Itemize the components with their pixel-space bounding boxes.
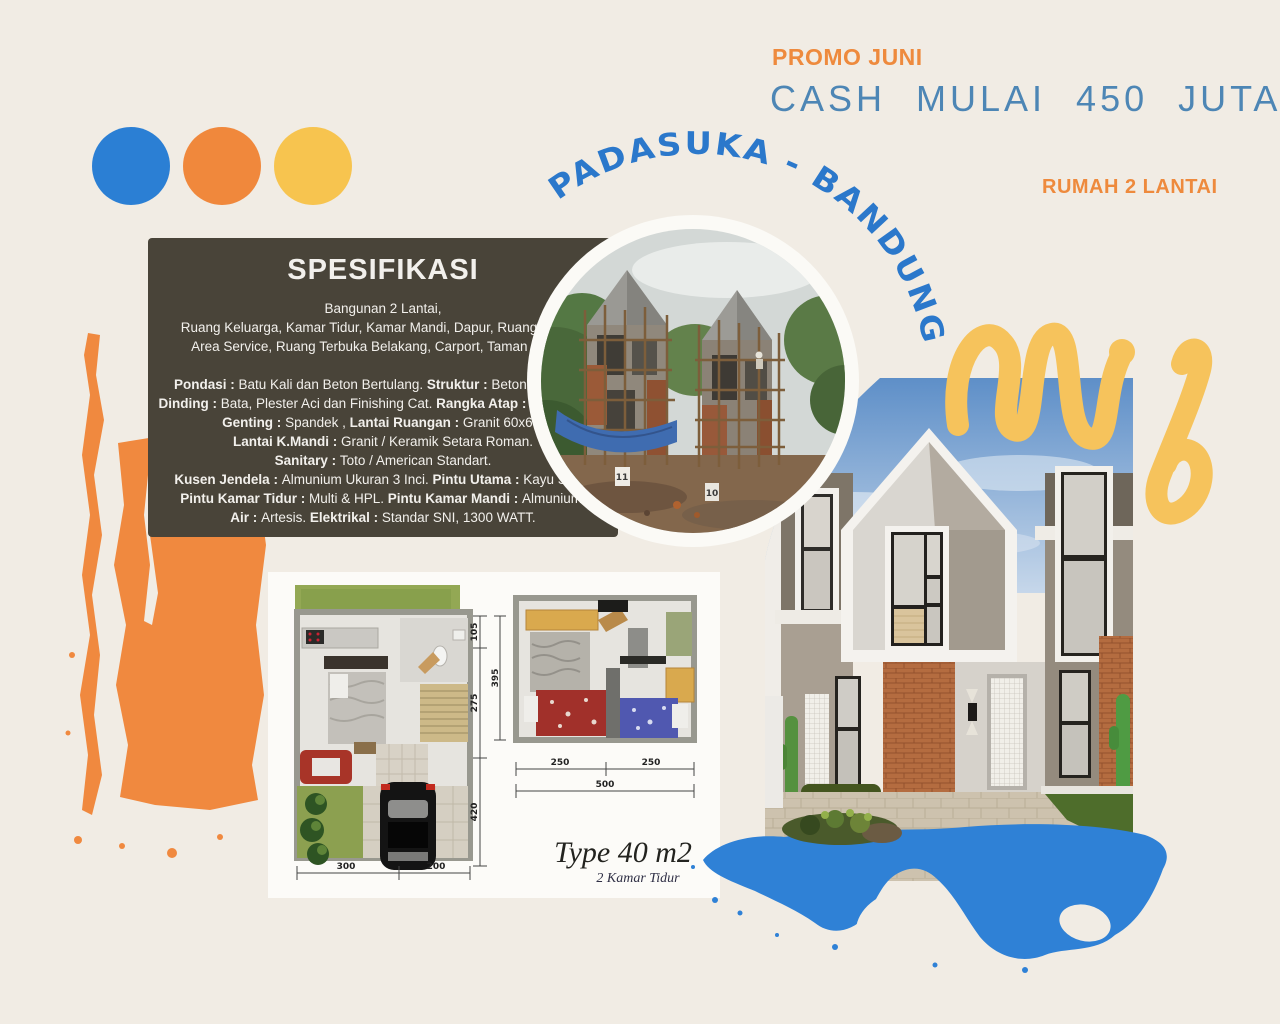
- construction-worker: [756, 359, 763, 369]
- price-headline: CASH MULAI 450 JUTA: [770, 78, 1280, 120]
- dimension-label: 250: [642, 758, 661, 768]
- construction-photo: 11 10: [527, 215, 859, 547]
- dimension-label: 250: [551, 758, 570, 768]
- dimension-label: 200: [427, 862, 446, 872]
- blue-paint-splash: [685, 805, 1185, 980]
- dimension-label: 105: [470, 623, 480, 642]
- palette-dot-yellow: [274, 127, 352, 205]
- plan-type-label: Type 40 m2: [554, 836, 692, 869]
- dimension-label: 500: [596, 780, 615, 790]
- dimension-label: 395: [491, 669, 501, 688]
- dimension-label: 275: [470, 694, 480, 713]
- palette-dot-orange: [183, 127, 261, 205]
- floor-plan: 105 275 420 395 250 250 500 300 200 Type…: [268, 572, 720, 898]
- yellow-squiggle-doodle: [930, 300, 1220, 535]
- photo-marker: 11: [616, 473, 629, 483]
- dimension-label: 300: [337, 862, 356, 872]
- planter-bush: [782, 809, 902, 845]
- wall-lamp: [968, 703, 977, 721]
- brick-pier: [883, 662, 955, 792]
- subtitle-label: RUMAH 2 LANTAI: [1042, 176, 1218, 199]
- promo-poster: PROMO JUNI CASH MULAI 450 JUTA RUMAH 2 L…: [0, 0, 1280, 1024]
- dimension-label: 420: [470, 803, 480, 822]
- photo-marker: 10: [706, 489, 719, 499]
- floor-plan-ground: [295, 585, 470, 870]
- plan-bedrooms-label: 2 Kamar Tidur: [596, 871, 680, 886]
- floor-plan-upper: [516, 598, 694, 740]
- palette-dot-blue: [92, 127, 170, 205]
- promo-label: PROMO JUNI: [772, 44, 923, 71]
